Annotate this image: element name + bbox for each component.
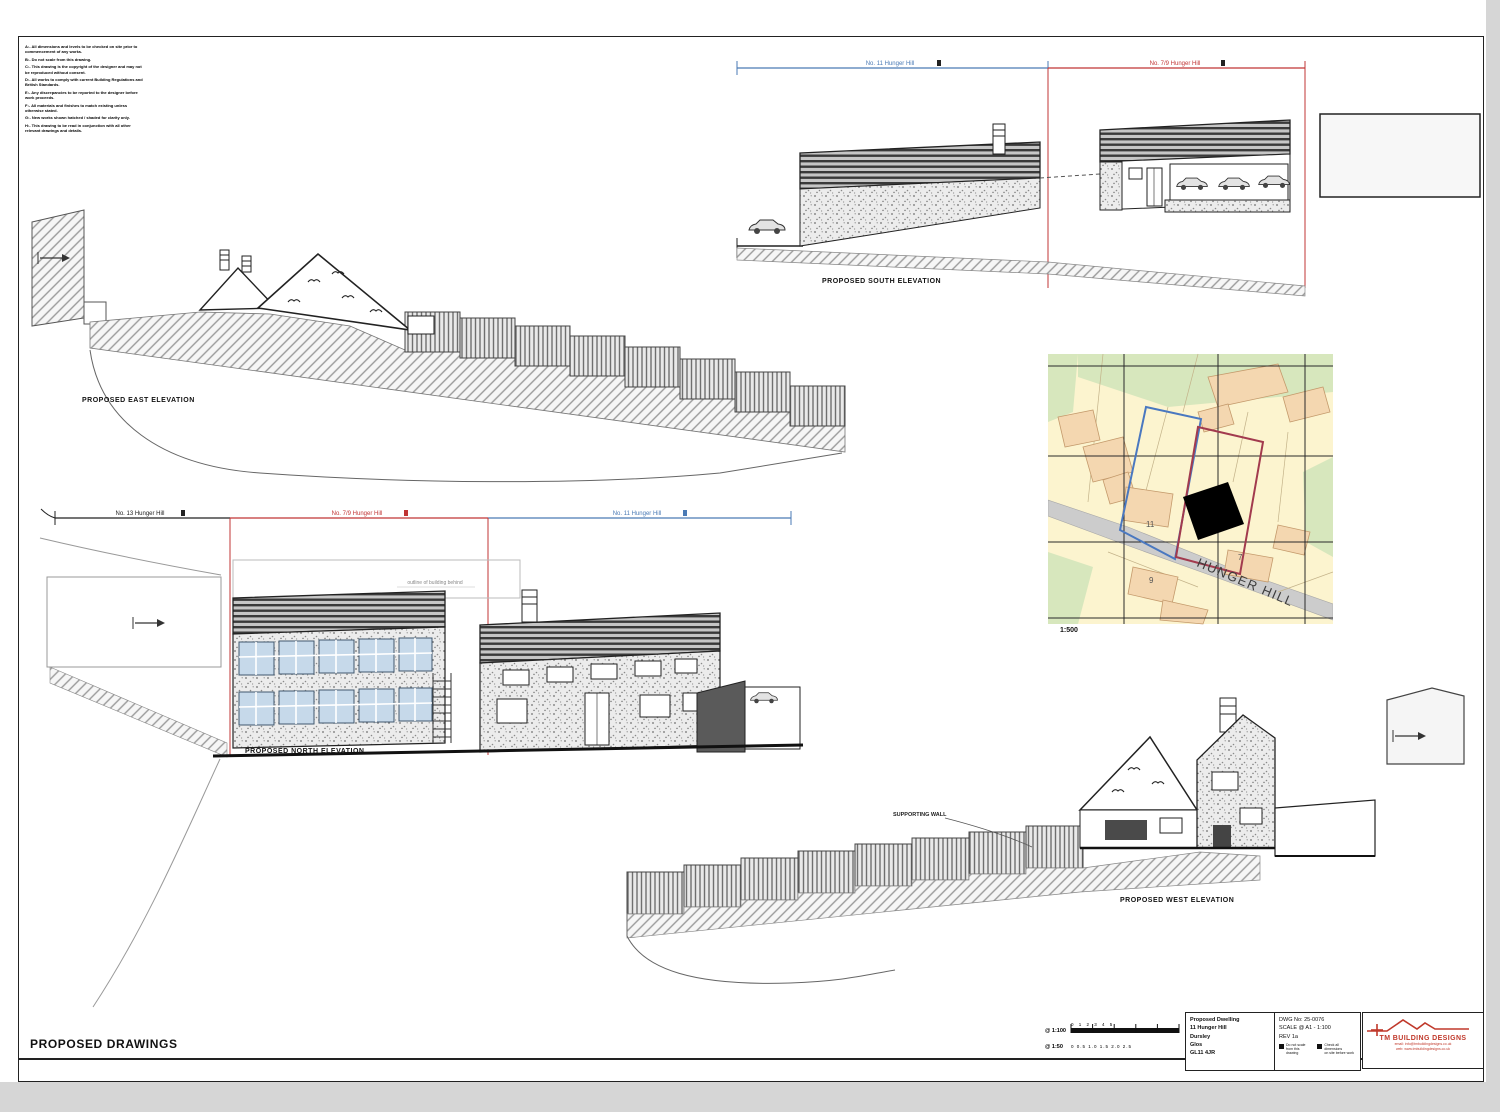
dimension-line-blue: No. 11 Hunger Hill xyxy=(737,60,1048,75)
dim-label-no11: No. 11 Hunger Hill xyxy=(613,511,662,517)
general-notes: A:- All dimensions and levels to be chec… xyxy=(25,44,143,135)
note-line: D:- All works to comply with current Bui… xyxy=(25,77,143,88)
title-note-2-line1: Check all dimensions xyxy=(1324,1043,1356,1051)
dim-label-no13: No. 13 Hunger Hill xyxy=(115,511,164,517)
title-block: Proposed Dwelling 11 Hunger Hill Dursley… xyxy=(1185,1012,1361,1071)
east-elevation-label: PROPOSED EAST ELEVATION xyxy=(82,397,195,404)
note-line: C:- This drawing is the copyright of the… xyxy=(25,64,143,75)
map-scale-label: 1:500 xyxy=(1060,627,1078,634)
dim-label-no79: No. 7/9 Hunger Hill xyxy=(332,511,383,517)
note-line: B:- Do not scale from this drawing. xyxy=(25,57,143,62)
drawing-sheet: A:- All dimensions and levels to be chec… xyxy=(0,0,1500,1112)
car-icon xyxy=(749,220,785,234)
dimension-line-black: No. 13 Hunger Hill xyxy=(55,510,230,525)
south-elevation-label: PROPOSED SOUTH ELEVATION xyxy=(822,278,941,285)
drawing-scale: SCALE @ A1 - 1:100 xyxy=(1279,1024,1356,1032)
roofline-logo-icon xyxy=(1363,1015,1473,1037)
drawing-number: DWG No: 25-0076 xyxy=(1279,1016,1356,1024)
note-line: H:- This drawing to be read in conjuncti… xyxy=(25,123,143,134)
level-arrow-icon xyxy=(157,619,165,627)
dim-label-no11: No. 11 Hunger Hill xyxy=(866,61,915,67)
location-map: 11 9 7 HUNGER HILL xyxy=(1048,352,1333,627)
boundary-wall xyxy=(1275,800,1375,856)
plot-label-11: 11 xyxy=(1146,520,1155,529)
project-address-2: Dursley xyxy=(1190,1033,1270,1041)
neighbour-building xyxy=(1320,114,1480,197)
neighbour-building-west xyxy=(1387,688,1464,764)
title-note-1: Do not scale from this drawing xyxy=(1279,1043,1311,1056)
project-title: Proposed Dwelling xyxy=(1190,1016,1270,1024)
project-address-3: Glos xyxy=(1190,1041,1270,1049)
drawing-revision: REV 1a xyxy=(1279,1033,1356,1041)
plot-label-7: 7 xyxy=(1238,553,1243,562)
existing-cottage-west xyxy=(1197,698,1275,848)
title-note-1-line2: from this drawing xyxy=(1286,1047,1311,1055)
west-elevation-label: PROPOSED WEST ELEVATION xyxy=(1120,897,1234,904)
dimension-line-red: No. 7/9 Hunger Hill xyxy=(230,510,488,518)
west-elevation-drawing: SUPPORTING WALL xyxy=(600,640,1495,1005)
title-note-2: Check all dimensions on site before work xyxy=(1317,1043,1356,1056)
note-line: A:- All dimensions and levels to be chec… xyxy=(25,44,143,55)
title-note-2-line2: on site before work xyxy=(1324,1051,1356,1055)
note-line: G:- New works shown hatched / shaded for… xyxy=(25,115,143,120)
scale-100-label: @ 1:100 xyxy=(1045,1028,1066,1034)
black-square-icon xyxy=(1279,1044,1284,1049)
scale-bars: @ 1:100 0 1 2 3 4 5 @ 1:50 0 0.5 1.0 1.5… xyxy=(1045,1018,1183,1064)
north-elevation-label: PROPOSED NORTH ELEVATION xyxy=(245,748,364,755)
page-margin-bottom xyxy=(0,1082,1500,1112)
dimension-line-red: No. 7/9 Hunger Hill xyxy=(1048,60,1305,75)
note-line: F:- All materials and finishes to match … xyxy=(25,103,143,114)
note-line: E:- Any discrepancies to be reported to … xyxy=(25,90,143,101)
south-elevation-drawing: No. 11 Hunger Hill No. 7/9 Hunger Hill xyxy=(725,50,1485,300)
plot-label-9: 9 xyxy=(1149,576,1154,585)
black-square-icon xyxy=(1317,1044,1322,1049)
scale-50-label: @ 1:50 xyxy=(1045,1044,1063,1050)
behind-outline-note: outline of building behind xyxy=(407,580,463,586)
logo-block: TM BUILDING DESIGNS email: info@tmbuildi… xyxy=(1362,1012,1484,1069)
logo-text: TM BUILDING DESIGNS xyxy=(1363,1035,1483,1042)
scale-50-ticks: 0 0.5 1.0 1.5 2.0 2.5 xyxy=(1071,1044,1132,1049)
project-address-1: 11 Hunger Hill xyxy=(1190,1024,1270,1032)
logo-contact-web: web: www.tmbuildingdesigns.co.uk xyxy=(1363,1047,1483,1052)
building-no79-south xyxy=(1100,120,1290,212)
sheet-title: PROPOSED DRAWINGS xyxy=(30,1037,178,1051)
project-address-4: GL11 4JR xyxy=(1190,1049,1270,1057)
west-annotation: SUPPORTING WALL xyxy=(893,812,947,818)
dimension-line-blue: No. 11 Hunger Hill xyxy=(488,510,791,525)
proposed-dwelling-north xyxy=(233,591,451,748)
building-no11-south xyxy=(800,124,1040,246)
dim-label-no79: No. 7/9 Hunger Hill xyxy=(1150,61,1201,67)
proposed-dwelling-west xyxy=(1080,737,1197,848)
